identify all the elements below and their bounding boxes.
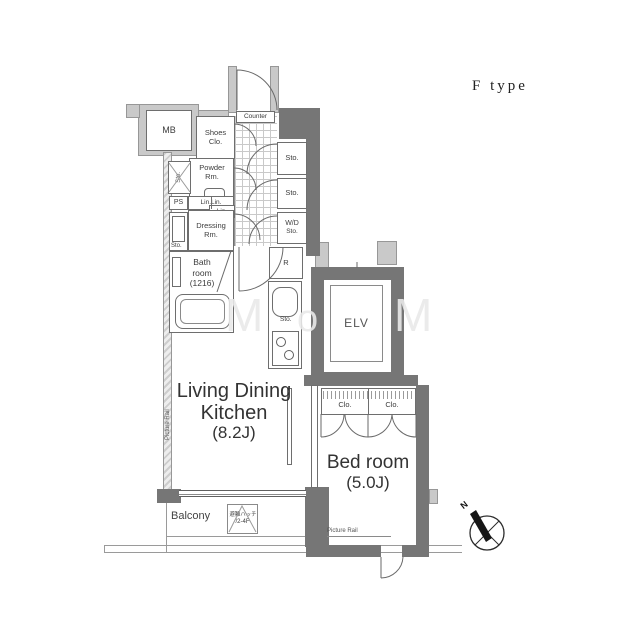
wall-bed-bottom-r xyxy=(402,545,429,557)
wd-label: W/D xyxy=(285,220,299,228)
ldk-label-2: Kitchen xyxy=(158,403,310,425)
kitchen-sink xyxy=(272,287,298,317)
ldk-label-3: (8.2J) xyxy=(158,424,310,442)
wall-entry-right xyxy=(270,66,279,113)
evacuation-hatch: 避難ハッチ /2-4F xyxy=(227,504,258,534)
ldk-label: Living Dining Kitchen (8.2J) xyxy=(158,381,310,443)
wd-storage: W/D Sto. xyxy=(277,212,307,244)
ps-label: PS xyxy=(174,199,183,207)
bath-label-3: (1216) xyxy=(190,278,215,289)
bathtub-inner xyxy=(180,299,225,324)
bedroom-label-2: (5.0J) xyxy=(318,473,418,492)
wall-bed-notch xyxy=(429,489,438,504)
refrigerator: R xyxy=(269,247,303,279)
powder-label: Powder Rm. xyxy=(191,164,233,181)
bedroom-label: Bed room (5.0J) xyxy=(318,452,418,492)
linen-divider xyxy=(211,197,212,209)
stove xyxy=(272,331,299,366)
powder-label-2: Rm. xyxy=(205,173,219,182)
compass xyxy=(470,510,504,550)
compass-cross xyxy=(475,521,499,545)
elevator-car: ELV xyxy=(330,285,383,362)
closet-1-label: Clo. xyxy=(322,401,368,410)
dressing-cabinet xyxy=(172,216,185,242)
wall-hall-strip xyxy=(306,139,320,256)
compass-circle xyxy=(470,516,504,550)
wd-sto-label: Sto. xyxy=(286,228,298,235)
ldk-label-1: Living Dining xyxy=(158,381,310,403)
hatch-label-2: /2-4F xyxy=(235,519,249,526)
compass-north-label: N xyxy=(459,499,470,511)
wall-bed-top xyxy=(304,375,418,386)
floor-plan: F type MB Shoes Clo. Counter Sto. Sto. W… xyxy=(0,0,640,640)
storage-2: Sto. xyxy=(277,178,307,209)
balcony-label: Balcony xyxy=(171,510,210,523)
refrigerator-label: R xyxy=(283,259,288,268)
hallway-floor xyxy=(234,116,277,246)
wall-elv-top xyxy=(311,267,404,280)
balcony-rail-end xyxy=(104,545,105,553)
dressing-label-2: Rm. xyxy=(204,231,218,240)
watermark-letter-3: M xyxy=(394,292,432,338)
wall-entry-left xyxy=(228,66,237,113)
wall-elv-stub-right xyxy=(377,241,397,265)
wall-ldk-corner xyxy=(157,489,181,503)
pipe-space: PS xyxy=(169,196,188,210)
storage-2-label: Sto. xyxy=(285,189,298,198)
counter: Counter xyxy=(236,111,275,123)
hatch-label-1: 避難ハッチ xyxy=(229,512,256,518)
ldk-window xyxy=(179,490,306,497)
wall-hall-corner xyxy=(279,108,320,139)
bedroom-exit-door-arc xyxy=(381,557,403,578)
mb-label: MB xyxy=(162,125,176,135)
compass-needle xyxy=(470,510,492,542)
burner-2 xyxy=(284,350,294,360)
elevator-label: ELV xyxy=(344,317,369,331)
room-mb: MB xyxy=(146,110,192,151)
dressing-storage-label: Sto. xyxy=(171,243,182,250)
closet-door-arcs xyxy=(321,414,416,437)
dressing-label: Dressing Rm. xyxy=(189,222,233,239)
shoes-closet-label-2: Clo. xyxy=(209,138,222,147)
storage-1: Sto. xyxy=(277,142,307,175)
balcony-left-line xyxy=(166,497,167,553)
watermark-letter-2: o xyxy=(297,300,318,338)
powder-storage: Sto. xyxy=(168,161,191,194)
counter-label: Counter xyxy=(244,113,267,120)
bath-label-2: room xyxy=(192,268,211,279)
wall-bed-west xyxy=(311,385,318,488)
picture-rail-left-label: Picture Rail xyxy=(165,396,172,440)
dressing-storage: Sto. xyxy=(169,212,188,251)
wall-pillar xyxy=(305,487,329,547)
kitchen-storage-label: Sto. xyxy=(280,316,292,323)
plan-type-label: F type xyxy=(472,78,528,95)
bath-label-1: Bath xyxy=(193,257,211,268)
balcony-edge xyxy=(166,536,306,537)
bath-label: Bath room (1216) xyxy=(172,257,232,289)
watermark-letter-1: M xyxy=(225,292,263,338)
burner-1 xyxy=(276,337,286,347)
storage-1-label: Sto. xyxy=(285,154,298,163)
powder-storage-label: Sto. xyxy=(176,172,183,183)
room-shoes-closet: Shoes Clo. xyxy=(196,116,235,159)
closet-2-label: Clo. xyxy=(369,401,415,410)
bedroom-label-1: Bed room xyxy=(318,452,418,473)
picture-rail-bottom-label: Picture Rail xyxy=(327,528,391,537)
wall-mb-stub xyxy=(126,104,140,118)
